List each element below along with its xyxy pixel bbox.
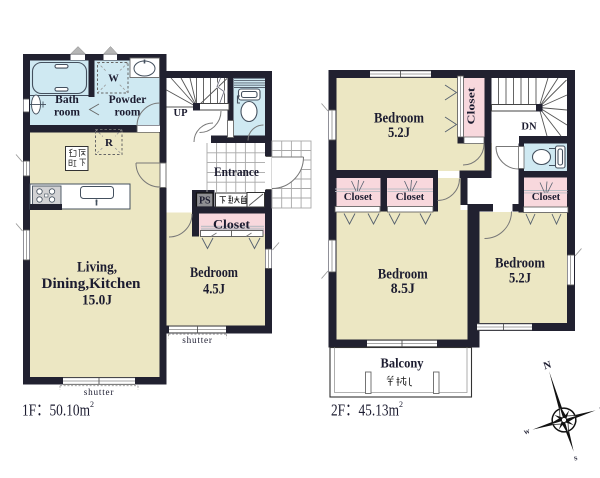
svg-text:15.0J: 15.0J (82, 293, 112, 309)
svg-text:Dining,Kitchen: Dining,Kitchen (42, 276, 142, 292)
svg-text:shutter: shutter (84, 387, 115, 397)
svg-text:room: room (54, 107, 80, 119)
svg-text:room: room (115, 107, 141, 119)
svg-text:Balcony: Balcony (381, 356, 424, 371)
svg-text:R: R (105, 137, 114, 149)
svg-text:UP: UP (174, 108, 189, 119)
svg-text:Closet: Closet (466, 87, 478, 125)
svg-text:4.5J: 4.5J (203, 282, 225, 298)
svg-text:2: 2 (399, 400, 403, 409)
svg-text:5.2J: 5.2J (509, 271, 531, 287)
svg-text:5.2J: 5.2J (388, 125, 410, 141)
svg-text:Closet: Closet (344, 192, 373, 203)
svg-text:DN: DN (521, 122, 537, 133)
svg-text:Closet: Closet (213, 218, 251, 232)
svg-text:Powder: Powder (109, 94, 147, 106)
svg-text:Bedroom: Bedroom (190, 265, 238, 281)
svg-text:W: W (108, 74, 119, 85)
svg-text:Bath: Bath (55, 94, 79, 106)
svg-text:2F：45.13m: 2F：45.13m (331, 401, 399, 420)
svg-text:Bedroom: Bedroom (495, 256, 545, 272)
svg-text:PS: PS (199, 196, 211, 207)
svg-text:Closet: Closet (396, 192, 425, 203)
svg-text:Entrance: Entrance (214, 165, 259, 179)
svg-text:2: 2 (90, 400, 94, 409)
svg-text:8.5J: 8.5J (391, 281, 415, 297)
svg-text:Closet: Closet (532, 192, 561, 203)
svg-text:1F：50.10m: 1F：50.10m (22, 401, 90, 420)
svg-text:shutter: shutter (182, 335, 213, 345)
svg-text:Living,: Living, (77, 260, 117, 276)
